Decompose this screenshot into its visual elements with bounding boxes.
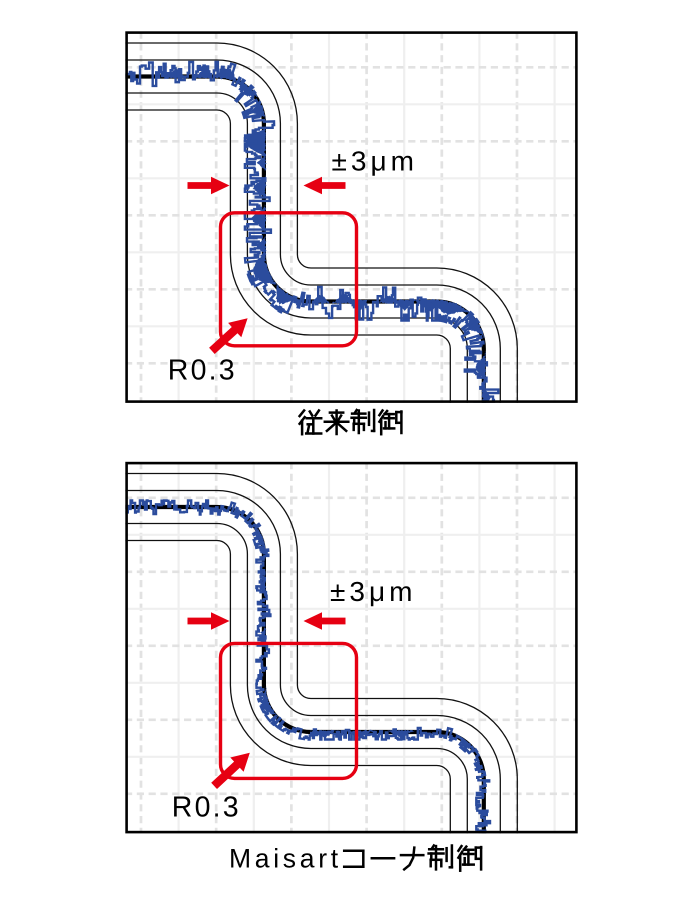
svg-text:Maisart: Maisart: [229, 844, 342, 874]
svg-text:±3μm: ±3μm: [332, 145, 418, 176]
svg-text:R0.3: R0.3: [168, 355, 237, 387]
svg-text:R0.3: R0.3: [172, 792, 241, 824]
svg-text:±3μm: ±3μm: [330, 576, 416, 607]
